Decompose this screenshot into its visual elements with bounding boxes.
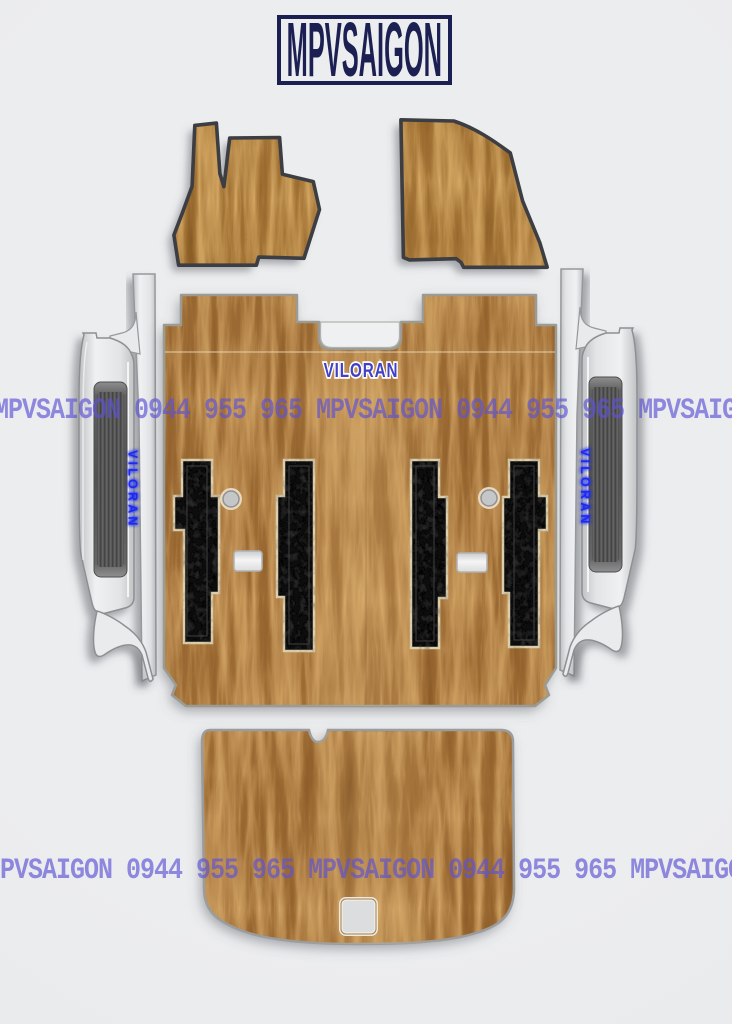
svg-text:VILORAN: VILORAN xyxy=(324,359,399,382)
svg-text:VILORAN: VILORAN xyxy=(126,450,140,529)
svg-text:VILORAN: VILORAN xyxy=(578,448,592,527)
